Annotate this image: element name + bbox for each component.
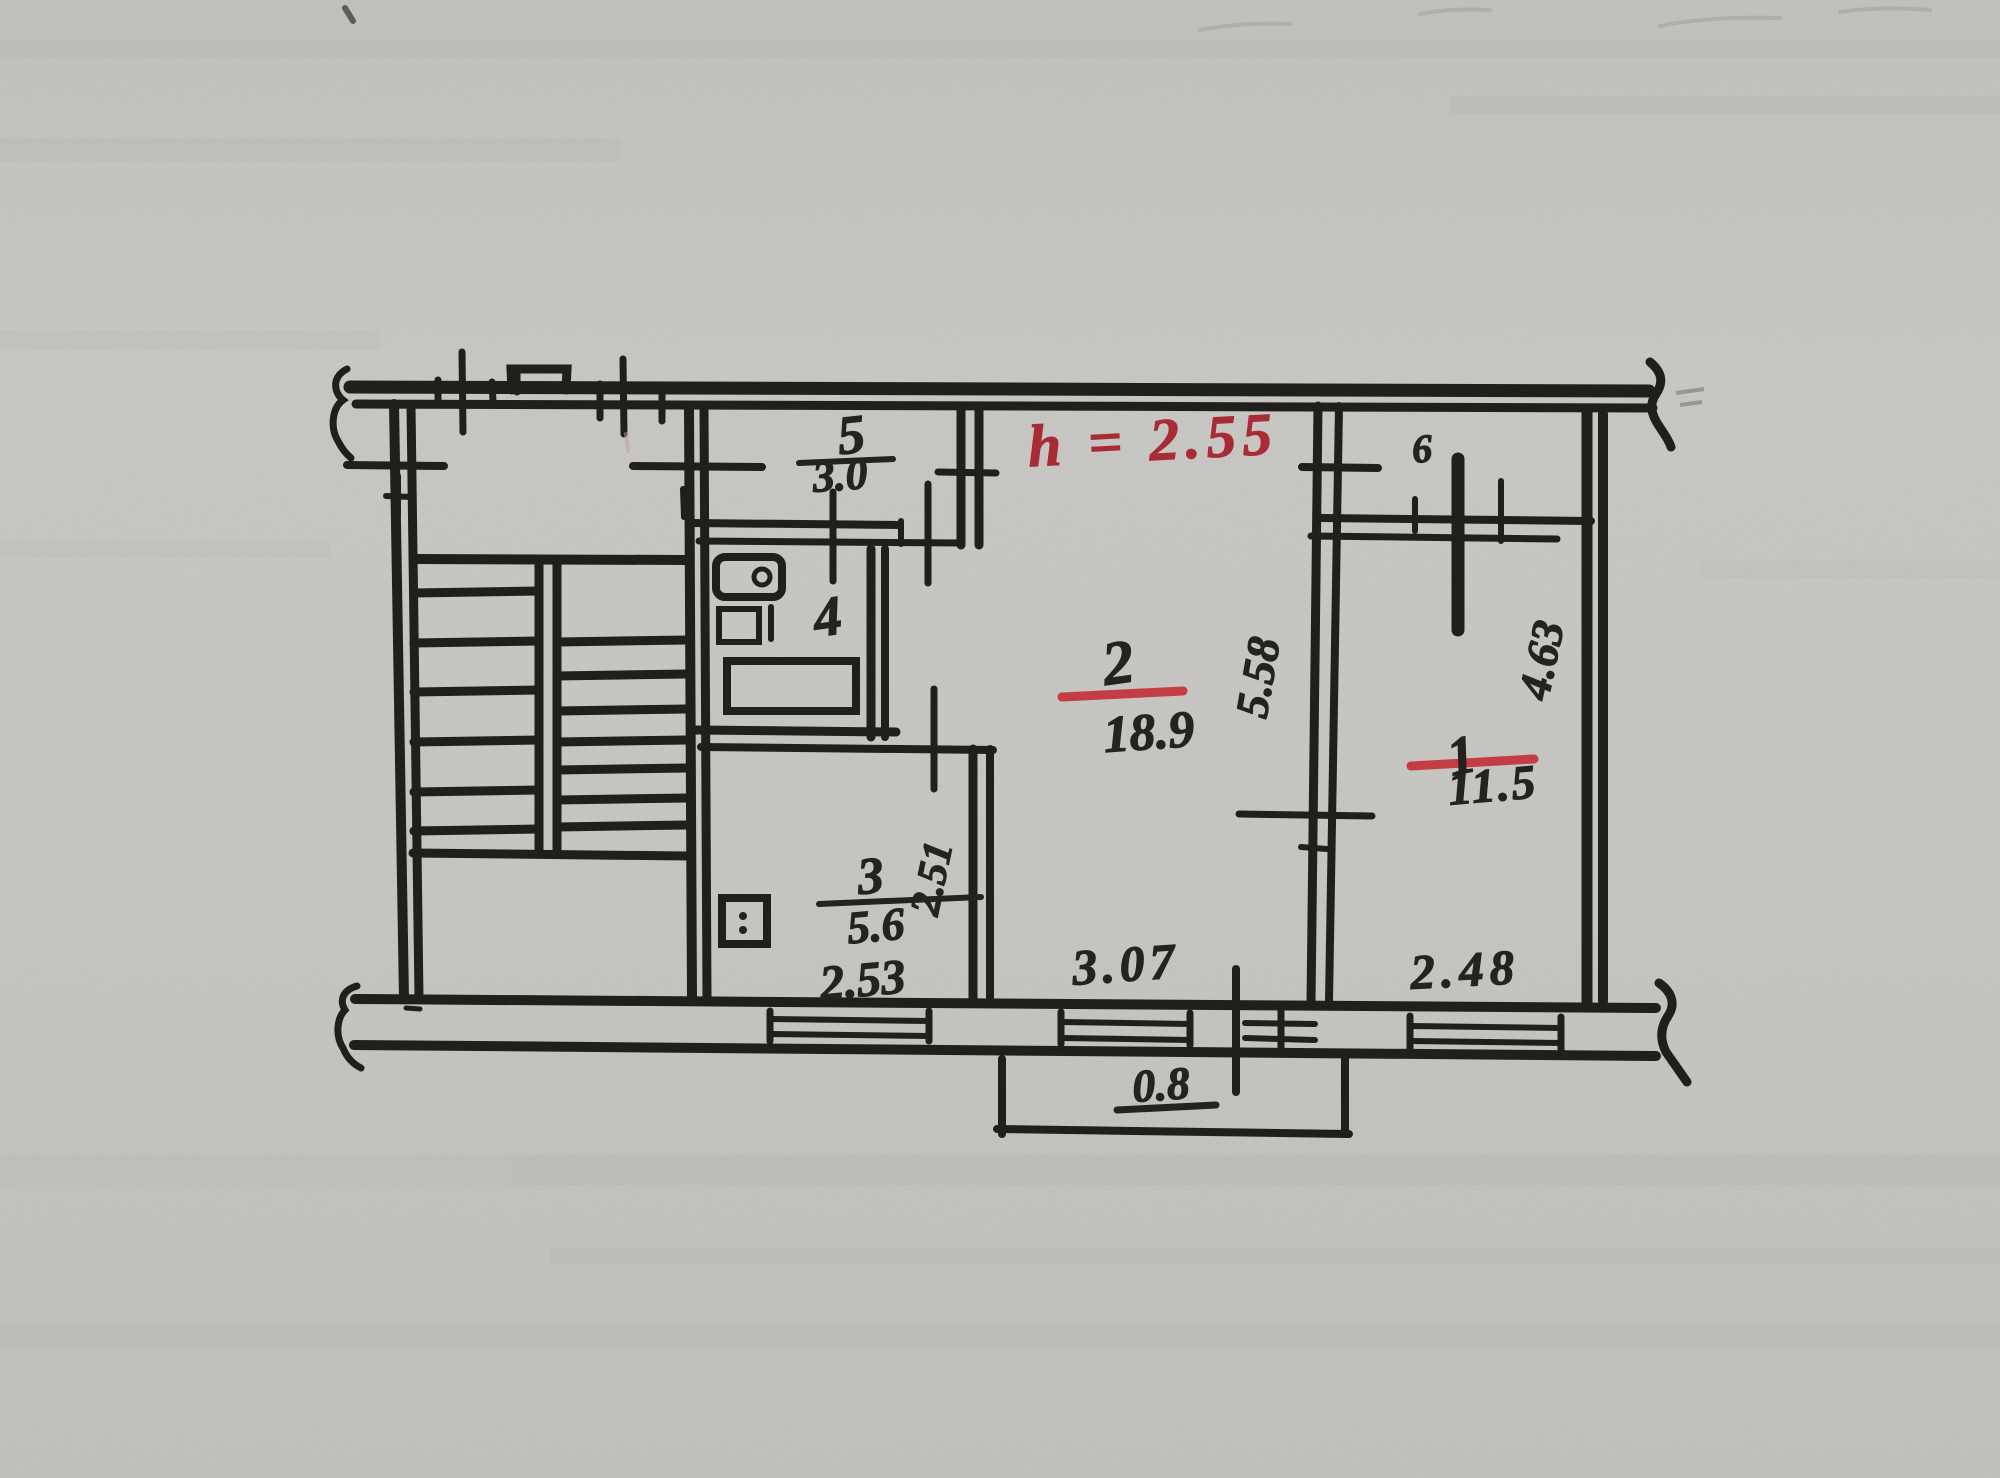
svg-text:2.53: 2.53: [816, 948, 907, 1010]
svg-text:11.5: 11.5: [1446, 755, 1540, 816]
svg-text:3.0: 3.0: [810, 449, 869, 502]
svg-text:3.07: 3.07: [1069, 932, 1181, 995]
svg-text:h = 2.55: h = 2.55: [1026, 401, 1280, 480]
svg-text:18.9: 18.9: [1101, 701, 1196, 764]
svg-text:3: 3: [854, 847, 886, 906]
svg-text:2.48: 2.48: [1408, 939, 1521, 1000]
svg-text:6: 6: [1411, 425, 1434, 471]
svg-text:5.6: 5.6: [845, 898, 907, 954]
